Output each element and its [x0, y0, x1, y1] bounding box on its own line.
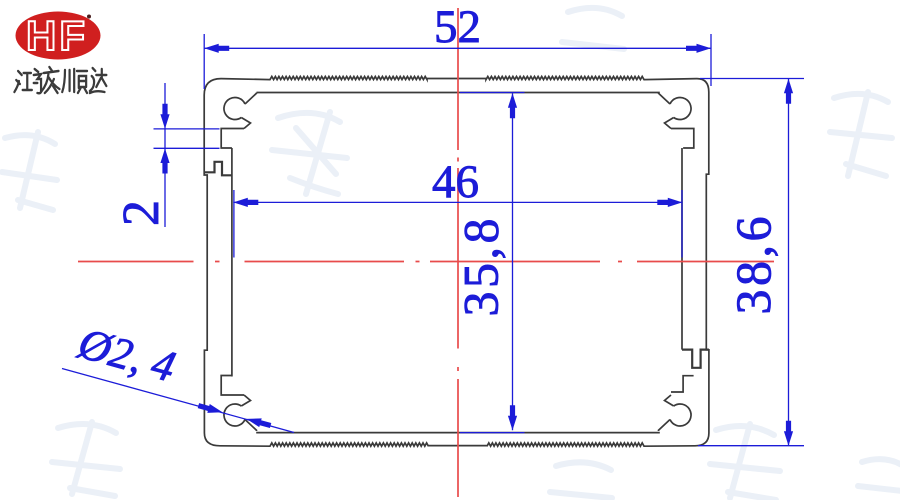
svg-text:52: 52	[434, 1, 481, 53]
svg-text:Ø2, 4: Ø2, 4	[72, 318, 180, 391]
svg-text:35,8: 35,8	[453, 215, 509, 317]
svg-text:2: 2	[113, 200, 170, 226]
svg-text:HF: HF	[26, 12, 88, 59]
svg-text:46: 46	[432, 156, 479, 208]
svg-text:38,6: 38,6	[725, 213, 781, 315]
